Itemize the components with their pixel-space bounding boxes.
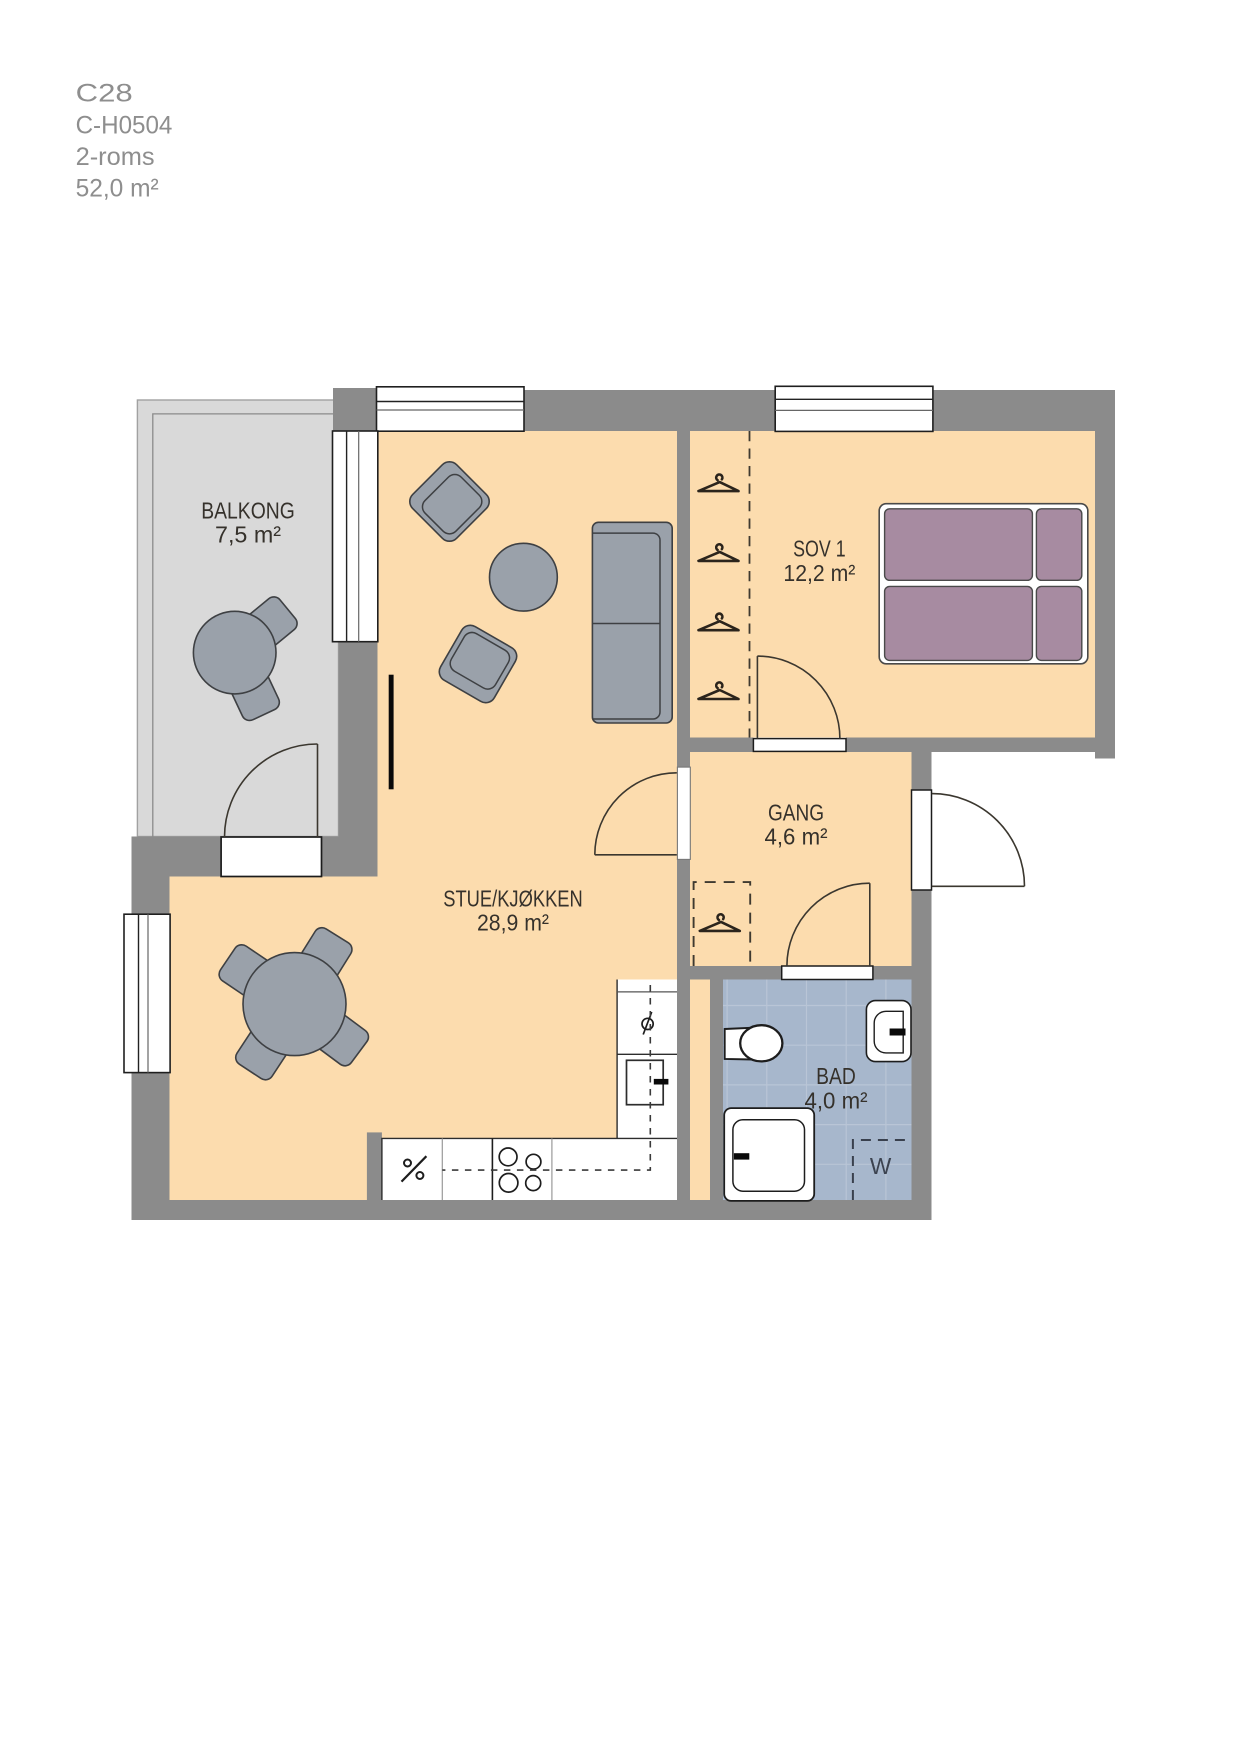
- svg-text:52,0 m²: 52,0 m²: [76, 175, 159, 203]
- svg-text:BALKONG: BALKONG: [201, 497, 295, 523]
- svg-text:GANG: GANG: [768, 800, 824, 826]
- svg-text:4,0 m²: 4,0 m²: [805, 1087, 868, 1113]
- svg-text:BAD: BAD: [816, 1063, 856, 1089]
- svg-text:28,9 m²: 28,9 m²: [477, 910, 549, 936]
- svg-text:4,6 m²: 4,6 m²: [765, 823, 828, 849]
- svg-text:C28: C28: [76, 80, 133, 108]
- svg-text:2-roms: 2-roms: [76, 143, 155, 171]
- svg-text:STUE/KJØKKEN: STUE/KJØKKEN: [443, 885, 583, 911]
- svg-text:C-H0504: C-H0504: [76, 111, 173, 139]
- svg-text:12,2 m²: 12,2 m²: [783, 560, 855, 586]
- svg-text:7,5 m²: 7,5 m²: [215, 522, 281, 548]
- svg-text:W: W: [870, 1153, 891, 1179]
- svg-text:SOV 1: SOV 1: [793, 536, 846, 562]
